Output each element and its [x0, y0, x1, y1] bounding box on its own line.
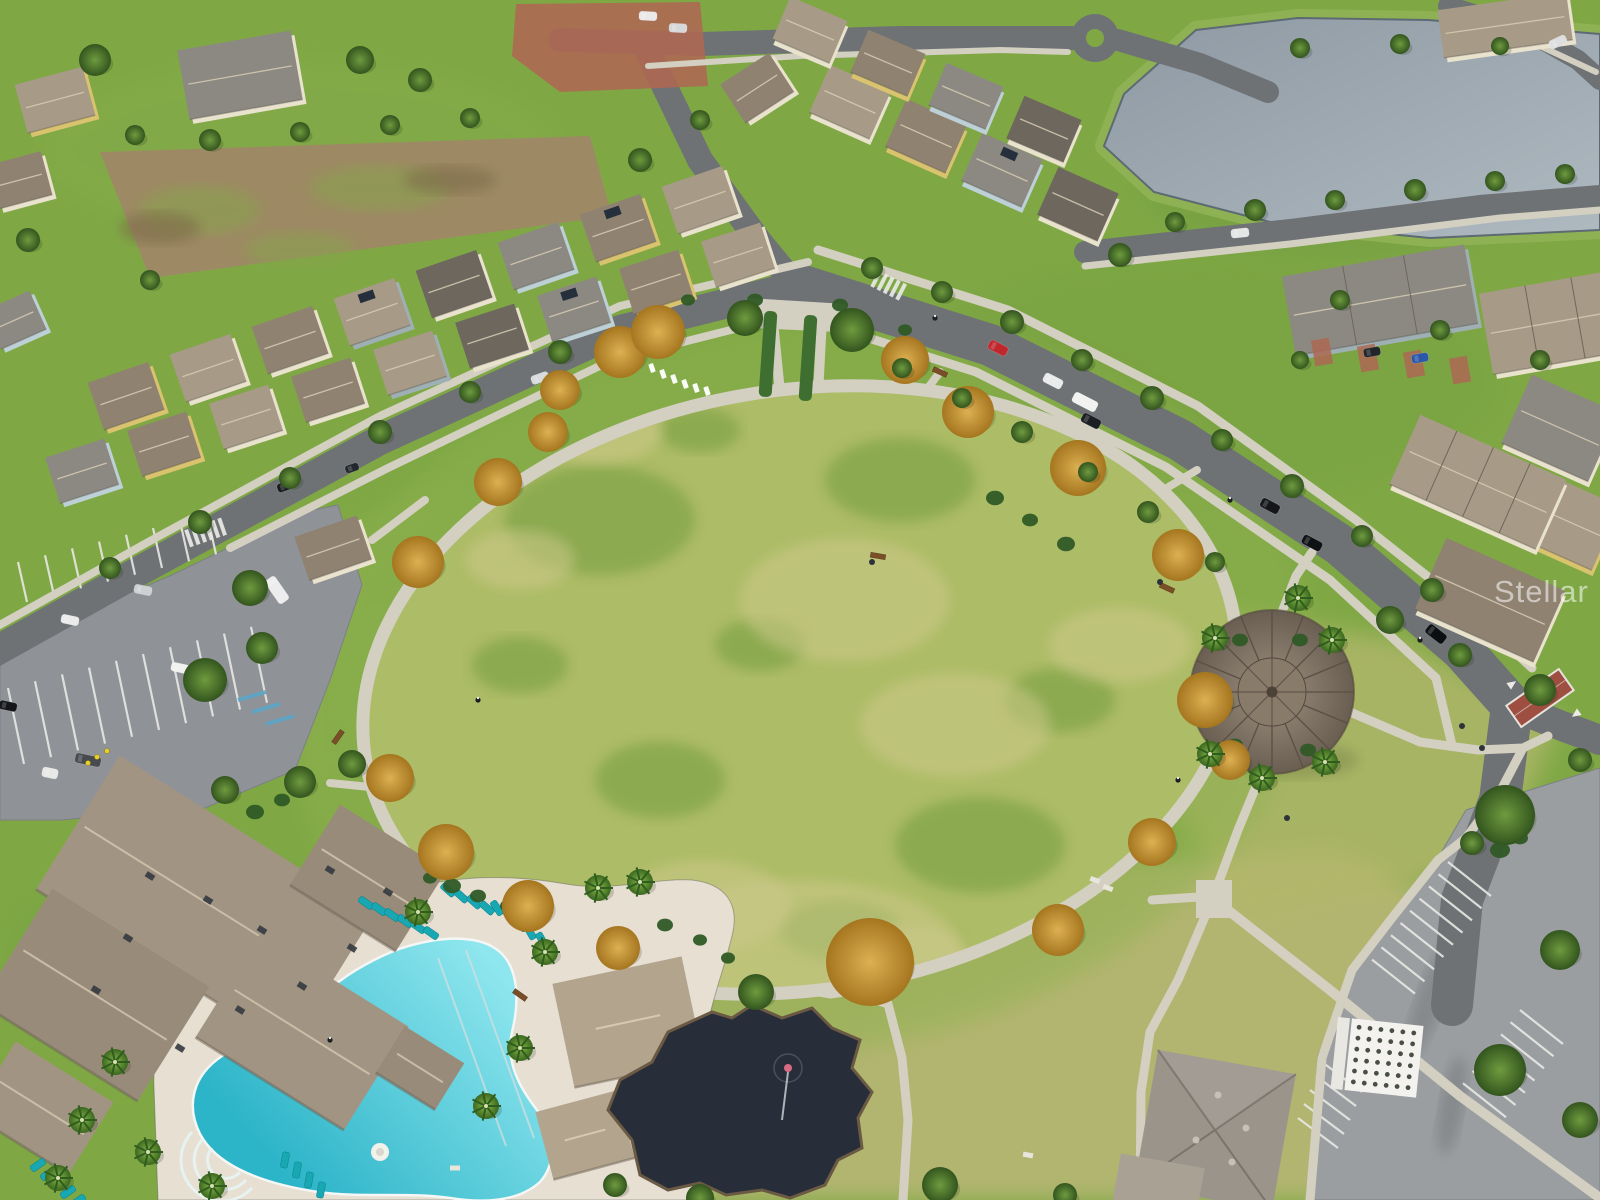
aerial-photo: Stellar MLS	[0, 0, 1600, 1200]
aerial-scene	[0, 0, 1600, 1200]
